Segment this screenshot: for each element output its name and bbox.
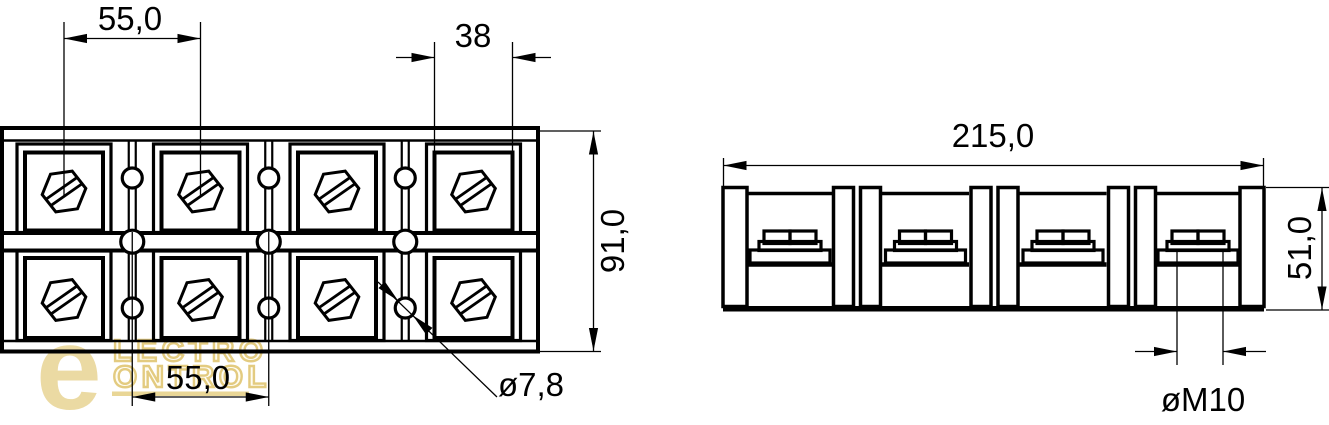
pole-module-3 bbox=[290, 144, 384, 341]
dim-thread-label: øM10 bbox=[1161, 381, 1245, 418]
pole-module-4 bbox=[427, 144, 521, 341]
dim-side-height: 51,0 bbox=[1266, 188, 1329, 311]
side-view: 215,0 51,0 øM10 bbox=[723, 117, 1329, 418]
dim-opening-label: 38 bbox=[455, 17, 492, 54]
terminal-stack-2 bbox=[882, 194, 969, 265]
dim-pitch-bottom-label: 55,0 bbox=[166, 359, 230, 396]
dim-hole-label: ø7,8 bbox=[498, 366, 564, 403]
divider-3 bbox=[394, 141, 417, 340]
watermark-letter-e: e bbox=[36, 303, 102, 425]
barrier-walls bbox=[723, 188, 1264, 307]
dim-height-label: 91,0 bbox=[594, 209, 631, 273]
technical-drawing: e LECTRO ONTROL 55,0 bbox=[0, 0, 1329, 425]
drawing-canvas: e LECTRO ONTROL 55,0 bbox=[0, 0, 1329, 425]
dim-length: 215,0 bbox=[724, 117, 1264, 186]
dim-length-label: 215,0 bbox=[952, 117, 1035, 154]
dim-height: 91,0 bbox=[540, 131, 631, 352]
terminal-stack-4 bbox=[1155, 194, 1242, 265]
dim-pitch-top-label: 55,0 bbox=[98, 0, 162, 37]
terminal-stack-3 bbox=[1020, 194, 1107, 265]
terminal-stack-1 bbox=[747, 194, 834, 265]
dim-side-height-label: 51,0 bbox=[1281, 216, 1318, 280]
